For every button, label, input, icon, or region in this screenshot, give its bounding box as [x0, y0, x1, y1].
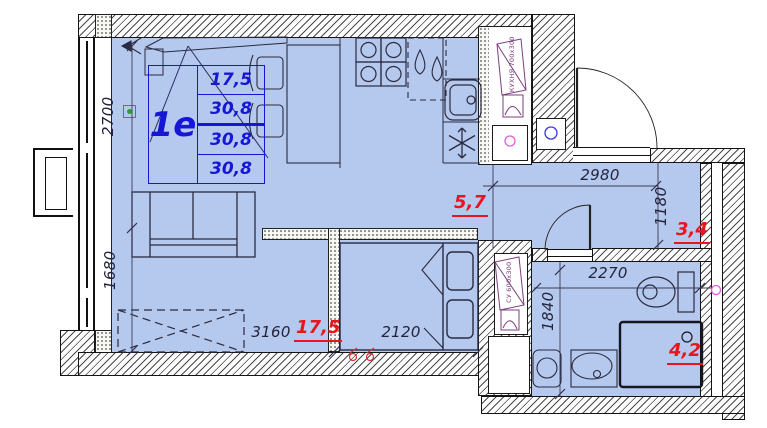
kitchen-sink-icon	[445, 80, 481, 120]
vent-marker-magenta-2	[712, 286, 721, 295]
spec-row-total-area-1: 30,8	[198, 95, 264, 126]
dim-living-width: 3160	[246, 324, 296, 341]
bath-door	[545, 205, 590, 250]
vent-marker-magenta-1	[505, 136, 515, 146]
area-label-hall: 3,4	[674, 220, 710, 244]
stove-icon	[356, 38, 406, 86]
unit-label: 1е	[149, 66, 198, 183]
desk-icon	[287, 45, 340, 163]
unit-spec-column: 17,5 30,8 30,8 30,8	[198, 66, 264, 183]
unit-spec-table: 1е 17,5 30,8 30,8 30,8	[148, 65, 265, 184]
area-label-kitchen: 5,7	[452, 193, 488, 217]
wardrobe-icon	[118, 310, 244, 352]
bath-vent-label: СУ 600х300	[506, 252, 513, 312]
dim-bath-depth: 1840	[540, 286, 557, 336]
entry-door	[577, 68, 657, 148]
spec-row-total-area-3: 30,8	[198, 155, 264, 183]
fridge-snowflake-icon	[449, 128, 475, 158]
kitchen-counter-lines	[340, 38, 480, 168]
area-label-bath: 4,2	[667, 341, 703, 365]
dim-living-depth-upper: 2700	[100, 91, 117, 141]
washing-machine-icon	[533, 350, 561, 387]
dim-hall-depth: 1180	[653, 181, 670, 231]
toilet-icon	[637, 272, 694, 312]
dim-bath-width: 2270	[583, 265, 633, 282]
floor-plan: 2700 1680 3160 2120 2980 1180 2270 1840 …	[0, 0, 767, 428]
bath-sink-icon	[571, 350, 617, 387]
dim-living-depth-lower: 1680	[102, 245, 119, 295]
area-label-living: 17,5	[294, 318, 342, 342]
spec-row-living-area: 17,5	[198, 66, 264, 95]
hob-drops-icon	[408, 38, 446, 100]
sofa-icon	[132, 192, 255, 257]
dim-bed-width: 2120	[376, 324, 426, 341]
spec-row-total-area-2: 30,8	[198, 126, 264, 155]
dim-hall-width: 2980	[575, 167, 625, 184]
kitchen-vent-label: КУХНЯ 700х300	[509, 34, 516, 94]
vent-marker-blue	[545, 127, 557, 139]
